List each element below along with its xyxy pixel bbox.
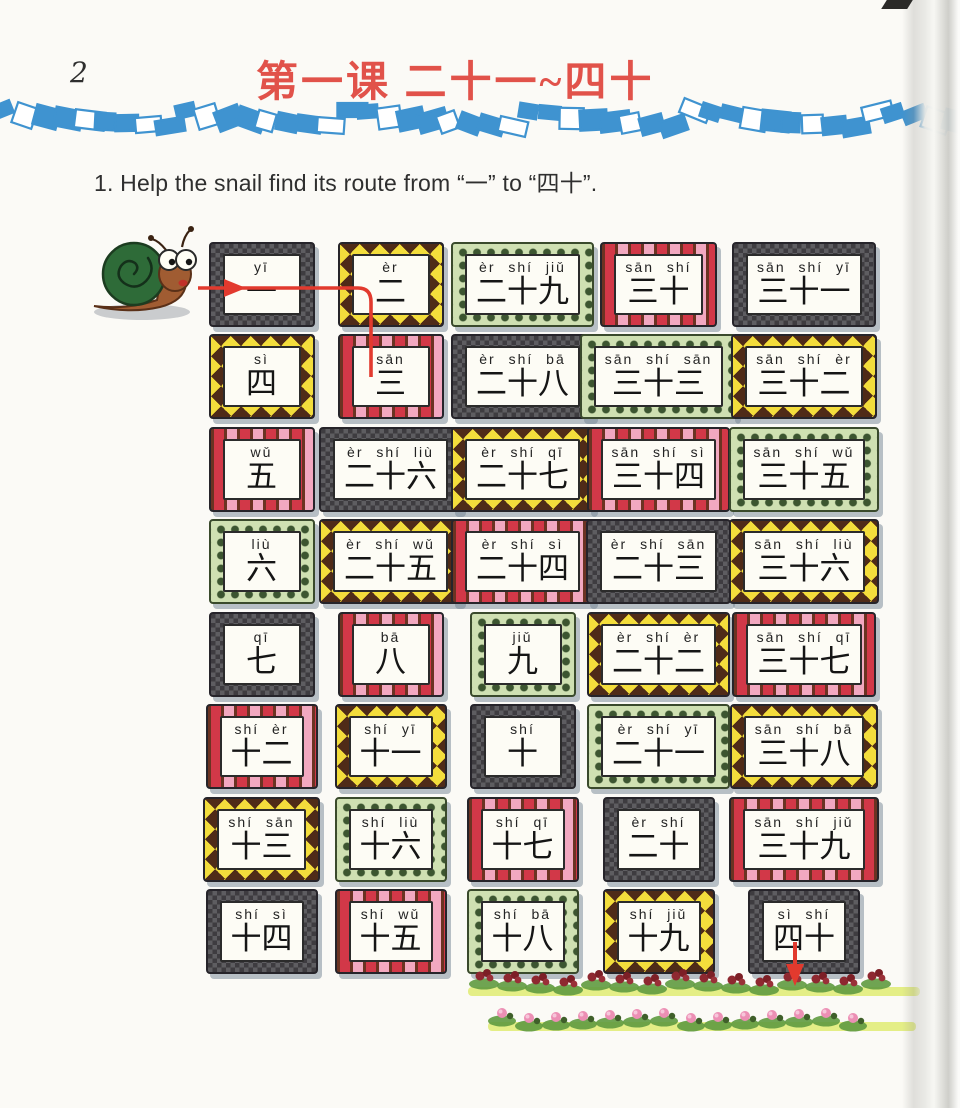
grid-cell: sān shí liù 三十六	[728, 516, 880, 609]
pinyin-label: èr shí sì	[476, 536, 569, 552]
pinyin-label: shí sì	[231, 906, 293, 922]
number-card-inner: èr shí sì 二十四	[465, 531, 580, 592]
number-card[interactable]: liù 六	[209, 519, 315, 604]
grid-cell: shí wǔ 十五	[325, 886, 456, 979]
hanzi-label: 二十六	[344, 460, 437, 493]
pinyin-label: sì shí	[773, 906, 835, 922]
number-card-inner: shí sān 十三	[217, 809, 305, 870]
hanzi-label: 十五	[360, 922, 422, 955]
pinyin-label: èr shí liù	[344, 444, 437, 460]
hanzi-label: 一	[234, 275, 290, 308]
number-card-inner: shí qī 十七	[481, 809, 565, 870]
grid-cell: shí jiǔ 十九	[589, 886, 728, 979]
number-card[interactable]: shí sān 十三	[203, 797, 319, 882]
grid-cell: yī 一	[198, 238, 325, 331]
number-card[interactable]: qī 七	[209, 612, 315, 697]
number-card-inner: qī 七	[223, 624, 301, 685]
number-card[interactable]: shí qī 十七	[467, 797, 579, 882]
page-spine	[902, 0, 960, 1108]
grid-cell: sān shí wǔ 三十五	[728, 423, 880, 516]
grid-cell: èr shí liù 二十六	[325, 423, 456, 516]
grid-cell: shí yī 十一	[325, 701, 456, 794]
grid-cell: liù 六	[198, 516, 325, 609]
number-card[interactable]: èr shí sān 二十三	[586, 519, 731, 604]
pinyin-label: èr shí bā	[476, 351, 569, 367]
pinyin-label: èr shí wǔ	[344, 536, 437, 552]
grid-cell: èr shí bā 二十八	[456, 331, 589, 424]
grid-cell: sì 四	[198, 331, 325, 424]
number-card-inner: shí bā 十八	[481, 901, 565, 962]
hanzi-label: 三十	[625, 275, 691, 308]
number-card[interactable]: jiǔ 九	[470, 612, 576, 697]
grid-cell: sān shí èr 三十二	[728, 331, 880, 424]
grid-cell: shí bā 十八	[456, 886, 589, 979]
pinyin-label: sān shí jiǔ	[754, 814, 853, 830]
grid-cell: sān shí jiǔ 三十九	[728, 793, 880, 886]
grid-cell: sān shí yī 三十一	[728, 238, 880, 331]
pinyin-label: shí qī	[492, 814, 554, 830]
hanzi-label: 二十五	[344, 552, 437, 585]
page-number: 2	[70, 56, 88, 89]
number-card[interactable]: sān shí qī 三十七	[732, 612, 877, 697]
grid-cell: wǔ 五	[198, 423, 325, 516]
number-card[interactable]: èr shí qī 二十七	[451, 427, 594, 512]
hanzi-label: 七	[234, 645, 290, 678]
grid-cell: èr shí qī 二十七	[456, 423, 589, 516]
hanzi-label: 五	[234, 460, 290, 493]
number-card-inner: sì shí 四十	[762, 901, 846, 962]
grid-cell: èr shí sì 二十四	[456, 516, 589, 609]
pinyin-label: sān shí	[625, 259, 691, 275]
number-card-inner: jiǔ 九	[484, 624, 562, 685]
hanzi-label: 二十七	[476, 460, 569, 493]
number-card-inner: sì 四	[223, 346, 301, 407]
pinyin-label: shí jiǔ	[628, 906, 690, 922]
number-card-inner: shí jiǔ 十九	[617, 901, 701, 962]
snail-icon	[86, 222, 214, 324]
pinyin-label: qī	[234, 629, 290, 645]
hanzi-label: 十一	[360, 737, 422, 770]
number-card[interactable]: shí jiǔ 十九	[603, 889, 715, 974]
grid-cell: èr shí jiǔ 二十九	[456, 238, 589, 331]
number-card-inner: shí yī 十一	[349, 716, 433, 777]
pinyin-label: yī	[234, 259, 290, 275]
hanzi-label: 二十一	[612, 737, 705, 770]
number-card-inner: èr shí 二十	[617, 809, 701, 870]
hanzi-label: 二十三	[611, 552, 706, 585]
number-card[interactable]: sān shí wǔ 三十五	[729, 427, 880, 512]
pinyin-label: bā	[363, 629, 419, 645]
number-card[interactable]: sān shí 三十	[600, 242, 716, 327]
pinyin-label: èr	[363, 259, 419, 275]
pinyin-label: shí liù	[360, 814, 422, 830]
page-corner-mark	[881, 0, 913, 9]
number-card-inner: shí wǔ 十五	[349, 901, 433, 962]
number-card[interactable]: sì shí 四十	[748, 889, 860, 974]
pinyin-label: shí	[495, 721, 551, 737]
grid-cell: shí sì 十四	[198, 886, 325, 979]
hanzi-label: 十二	[231, 737, 293, 770]
number-card[interactable]: sān shí sān 三十三	[580, 334, 738, 419]
hanzi-label: 二十八	[476, 367, 569, 400]
pinyin-label: sān shí yī	[757, 259, 851, 275]
number-card[interactable]: èr shí wǔ 二十五	[319, 519, 462, 604]
number-card[interactable]: shí 十	[470, 704, 576, 789]
hanzi-label: 三十二	[756, 367, 851, 400]
grid-cell: sān shí sì 三十四	[589, 423, 728, 516]
number-card-inner: èr shí bā 二十八	[465, 346, 580, 407]
grid-cell: shí liù 十六	[325, 793, 456, 886]
hanzi-label: 二	[363, 275, 419, 308]
number-card[interactable]: èr shí sì 二十四	[451, 519, 594, 604]
pinyin-label: shí èr	[231, 721, 293, 737]
number-card-inner: yī 一	[223, 254, 301, 315]
pinyin-label: sān shí èr	[756, 351, 851, 367]
pinyin-label: liù	[234, 536, 290, 552]
number-card-inner: shí 十	[484, 716, 562, 777]
hanzi-label: 三十四	[612, 460, 706, 493]
grid-cell: èr shí sān 二十三	[589, 516, 728, 609]
hanzi-label: 三十八	[755, 737, 854, 770]
number-card[interactable]: èr shí èr 二十二	[587, 612, 730, 697]
number-card[interactable]: shí sì 十四	[206, 889, 318, 974]
grid-cell: sān shí 三十	[589, 238, 728, 331]
grid-cell: shí qī 十七	[456, 793, 589, 886]
number-card-inner: sān shí liù 三十六	[743, 531, 864, 592]
pinyin-label: wǔ	[234, 444, 290, 460]
number-card[interactable]: èr shí bā 二十八	[451, 334, 594, 419]
number-card[interactable]: yī 一	[209, 242, 315, 327]
pinyin-label: shí wǔ	[360, 906, 422, 922]
number-card-inner: sān shí jiǔ 三十九	[743, 809, 864, 870]
number-card[interactable]: sì 四	[209, 334, 315, 419]
hanzi-label: 四	[234, 367, 290, 400]
hanzi-label: 八	[363, 645, 419, 678]
number-card-inner: sān shí sān 三十三	[594, 346, 724, 407]
number-card[interactable]: shí wǔ 十五	[335, 889, 447, 974]
hanzi-label: 六	[234, 552, 290, 585]
number-card[interactable]: èr shí liù 二十六	[319, 427, 462, 512]
hanzi-label: 二十四	[476, 552, 569, 585]
number-card-inner: èr shí yī 二十一	[601, 716, 716, 777]
hanzi-label: 三	[363, 367, 419, 400]
number-card[interactable]: èr shí jiǔ 二十九	[451, 242, 594, 327]
grid-cell: èr shí wǔ 二十五	[325, 516, 456, 609]
number-card-inner: shí sì 十四	[220, 901, 304, 962]
hanzi-label: 九	[495, 645, 551, 678]
number-card-inner: wǔ 五	[223, 439, 301, 500]
decorative-band	[0, 96, 960, 144]
pinyin-label: sān shí qī	[757, 629, 852, 645]
number-card[interactable]: sān shí liù 三十六	[729, 519, 878, 604]
hanzi-label: 十九	[628, 922, 690, 955]
number-card[interactable]: sān 三	[338, 334, 444, 419]
hanzi-label: 三十九	[754, 830, 853, 863]
number-card[interactable]: èr shí yī 二十一	[587, 704, 730, 789]
number-card[interactable]: èr 二	[338, 242, 444, 327]
number-card-inner: liù 六	[223, 531, 301, 592]
pinyin-label: sān shí liù	[754, 536, 853, 552]
grid-cell: sì shí 四十	[728, 886, 880, 979]
number-card-inner: èr shí jiǔ 二十九	[465, 254, 580, 315]
number-card[interactable]: bā 八	[338, 612, 444, 697]
number-card[interactable]: shí liù 十六	[335, 797, 447, 882]
number-card-inner: sān shí èr 三十二	[745, 346, 862, 407]
grid-cell: sān 三	[325, 331, 456, 424]
grid-cell: shí 十	[456, 701, 589, 794]
number-card-inner: sān shí bā 三十八	[744, 716, 865, 777]
grid-cell: èr shí yī 二十一	[589, 701, 728, 794]
instruction-text: 1. Help the snail find its route from “一…	[94, 164, 597, 198]
number-card[interactable]: shí bā 十八	[467, 889, 579, 974]
grid-cell: jiǔ 九	[456, 608, 589, 701]
hanzi-label: 十四	[231, 922, 293, 955]
number-card-inner: èr shí qī 二十七	[465, 439, 580, 500]
pinyin-label: sān shí bā	[755, 721, 854, 737]
number-card-inner: sān shí sì 三十四	[601, 439, 717, 500]
pinyin-label: sān shí wǔ	[754, 444, 855, 460]
hanzi-label: 十六	[360, 830, 422, 863]
pinyin-label: èr shí èr	[612, 629, 705, 645]
pinyin-label: èr shí sān	[611, 536, 706, 552]
pinyin-label: shí sān	[228, 814, 294, 830]
grid-cell: èr shí 二十	[589, 793, 728, 886]
hanzi-label: 十三	[228, 830, 294, 863]
hanzi-label: 十七	[492, 830, 554, 863]
pinyin-label: shí bā	[492, 906, 554, 922]
number-grid: yī 一 èr 二 èr shí jiǔ 二十九 sān shí 三十	[198, 238, 880, 978]
hanzi-label: 三十一	[757, 275, 851, 308]
grid-cell: èr shí èr 二十二	[589, 608, 728, 701]
number-card-inner: sān shí wǔ 三十五	[743, 439, 866, 500]
pinyin-label: èr shí	[628, 814, 690, 830]
number-card-inner: shí liù 十六	[349, 809, 433, 870]
hanzi-label: 二十二	[612, 645, 705, 678]
number-card[interactable]: èr shí 二十	[603, 797, 715, 882]
pinyin-label: sān shí sì	[612, 444, 706, 460]
number-card-inner: èr shí sān 二十三	[600, 531, 717, 592]
grid-cell: sān shí bā 三十八	[728, 701, 880, 794]
number-card[interactable]: sān shí èr 三十二	[731, 334, 876, 419]
number-card-inner: èr 二	[352, 254, 430, 315]
pinyin-label: sān	[363, 351, 419, 367]
number-card-inner: èr shí liù 二十六	[333, 439, 448, 500]
grid-cell: sān shí qī 三十七	[728, 608, 880, 701]
number-card-inner: shí èr 十二	[220, 716, 304, 777]
number-card[interactable]: shí èr 十二	[206, 704, 318, 789]
number-card-inner: sān shí yī 三十一	[746, 254, 862, 315]
hanzi-label: 十	[495, 737, 551, 770]
hanzi-label: 三十三	[605, 367, 713, 400]
number-card[interactable]: sān shí bā 三十八	[730, 704, 879, 789]
number-card[interactable]: sān shí sì 三十四	[587, 427, 731, 512]
hanzi-label: 二十九	[476, 275, 569, 308]
number-card[interactable]: shí yī 十一	[335, 704, 447, 789]
hanzi-label: 二十	[628, 830, 690, 863]
pinyin-label: shí yī	[360, 721, 422, 737]
number-card-inner: èr shí èr 二十二	[601, 624, 716, 685]
pinyin-label: èr shí yī	[612, 721, 705, 737]
number-card-inner: sān shí 三十	[614, 254, 702, 315]
number-card-inner: bā 八	[352, 624, 430, 685]
grid-cell: sān shí sān 三十三	[589, 331, 728, 424]
grid-cell: qī 七	[198, 608, 325, 701]
hanzi-label: 三十六	[754, 552, 853, 585]
pinyin-label: èr shí jiǔ	[476, 259, 569, 275]
grid-cell: shí èr 十二	[198, 701, 325, 794]
pinyin-label: èr shí qī	[476, 444, 569, 460]
number-card[interactable]: sān shí yī 三十一	[732, 242, 876, 327]
number-card-inner: èr shí wǔ 二十五	[333, 531, 448, 592]
number-card[interactable]: sān shí jiǔ 三十九	[729, 797, 878, 882]
hanzi-label: 三十五	[754, 460, 855, 493]
hanzi-label: 十八	[492, 922, 554, 955]
pinyin-label: sì	[234, 351, 290, 367]
grid-cell: bā 八	[325, 608, 456, 701]
number-card[interactable]: wǔ 五	[209, 427, 315, 512]
grid-cell: èr 二	[325, 238, 456, 331]
number-card-inner: sān 三	[352, 346, 430, 407]
pinyin-label: sān shí sān	[605, 351, 713, 367]
pinyin-label: jiǔ	[495, 629, 551, 645]
number-card-inner: sān shí qī 三十七	[746, 624, 863, 685]
hanzi-label: 三十七	[757, 645, 852, 678]
hanzi-label: 四十	[773, 922, 835, 955]
grid-cell: shí sān 十三	[198, 793, 325, 886]
